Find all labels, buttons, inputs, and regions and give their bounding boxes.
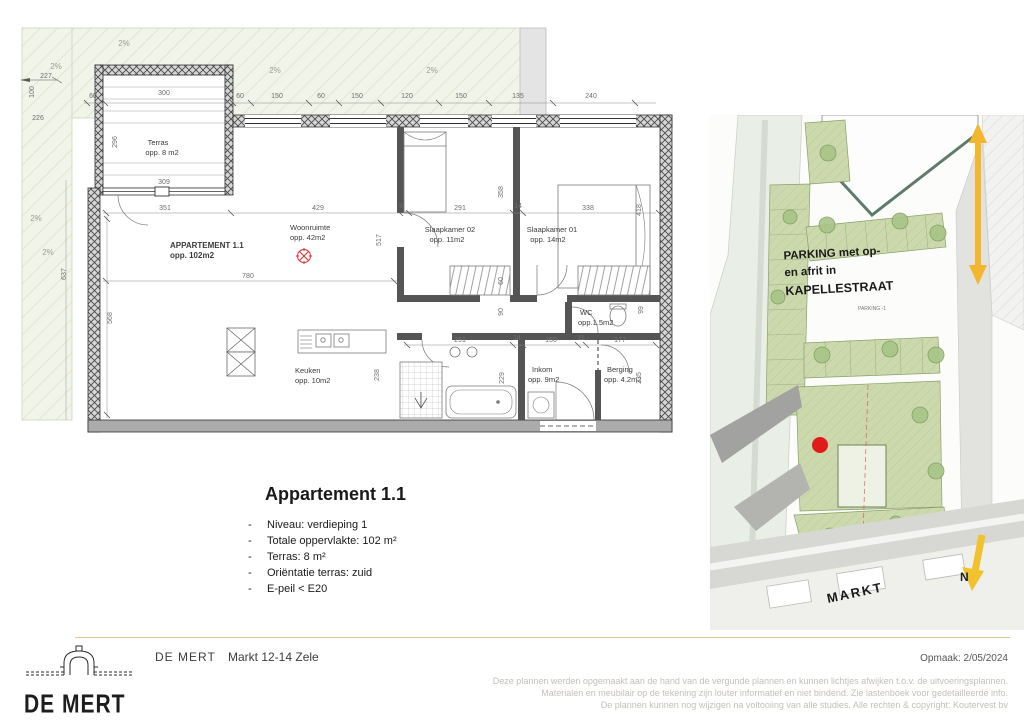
slope-label: 2% [118, 39, 130, 48]
fixtures [227, 132, 650, 418]
dim: 150 [455, 93, 467, 100]
bullet-dash: - [246, 549, 267, 565]
logo-text: DE MERT [24, 690, 126, 720]
dim: 338 [582, 205, 594, 212]
footer-address: Markt 12-14 Zele [228, 650, 319, 664]
info-item-text: Totale oppervlakte: 102 m² [267, 533, 397, 549]
dim-terras-height: 296 [112, 136, 119, 148]
dim: 291 [454, 205, 466, 212]
inkom-area: opp. 9m2 [528, 375, 559, 384]
info-list: -Niveau: verdieping 1 -Totale oppervlakt… [246, 517, 576, 597]
dim-226: 226 [32, 115, 44, 122]
site-plan: N PARKING met op- en afrit in KAPELLESTR… [710, 115, 1024, 630]
dim: 135 [512, 93, 524, 100]
plan-page: 2% 2% 2% 2% 2% 2% 227 100 226 637 [0, 0, 1024, 724]
inkom-name: Inkom [532, 365, 552, 374]
woonruimte-area: opp. 42m2 [290, 233, 325, 242]
slaapkamer01-name: Slaapkamer 01 [527, 225, 577, 234]
slaapkamer02-area: opp. 11m2 [430, 235, 465, 244]
apartment-area: opp. 102m2 [170, 251, 215, 260]
footer-disclaimer: Deze plannen werden opgemaakt aan de han… [488, 675, 1008, 711]
keuken-name: Keuken [295, 366, 320, 375]
dim: 358 [498, 186, 505, 198]
dim: 240 [585, 93, 597, 100]
info-item-text: Niveau: verdieping 1 [267, 517, 367, 533]
terras: Terras opp. 8 m2 300 309 296 [95, 65, 233, 196]
bullet-dash: - [246, 565, 267, 581]
north-label: N [960, 570, 969, 584]
basin-icon [450, 347, 460, 357]
dim: 229 [499, 372, 506, 384]
dim: 150 [545, 337, 557, 344]
dim: 177 [614, 337, 626, 344]
bullet-dash: - [246, 533, 267, 549]
dim: 291 [454, 337, 466, 344]
washer-icon [528, 392, 554, 418]
wc-area: opp.1.5m2 [578, 318, 613, 327]
wc-name: WC [580, 308, 593, 317]
bullet-dash: - [246, 517, 267, 533]
bullet-dash: - [246, 581, 267, 597]
slaapkamer01-area: opp. 14m2 [530, 235, 565, 244]
info-item: -Totale oppervlakte: 102 m² [246, 533, 576, 549]
berging-name: Berging [607, 365, 633, 374]
footer-brand: DE MERT [155, 650, 216, 664]
dim: 418 [636, 204, 643, 216]
dim: 150 [271, 93, 283, 100]
parking-small-label: PARKING -1 [858, 306, 886, 312]
dim: 60 [317, 93, 325, 100]
dim-637: 637 [61, 268, 68, 280]
dim: 99 [638, 306, 645, 314]
keuken-area: opp. 10m2 [295, 376, 330, 385]
dim: 14 [514, 203, 522, 210]
apartment-name: APPARTEMENT 1.1 [170, 241, 244, 250]
info-item-text: E-peil < E20 [267, 581, 327, 597]
dim-100: 100 [29, 86, 36, 98]
slope-label: 2% [42, 248, 54, 257]
dim: 14 [513, 335, 521, 342]
slaapkamer02-name: Slaapkamer 02 [425, 225, 475, 234]
dim: 780 [242, 273, 254, 280]
sink-icon [334, 334, 349, 347]
dim: 11 [577, 335, 584, 342]
terras-name: Terras [148, 138, 169, 147]
info-item-text: Terras: 8 m² [267, 549, 326, 565]
footer-date: Opmaak: 2/05/2024 [920, 653, 1008, 664]
info-item: -E-peil < E20 [246, 581, 576, 597]
floor-plan: 2% 2% 2% 2% 2% 2% 227 100 226 637 [0, 0, 690, 470]
info-title: Appartement 1.1 [265, 484, 576, 505]
shower-icon [400, 362, 442, 418]
apartment-info: Appartement 1.1 -Niveau: verdieping 1 -T… [246, 484, 576, 597]
sink-icon [316, 334, 331, 347]
disclaimer-line: Materialen en meubilair op de tekening z… [488, 687, 1008, 699]
dim: 120 [401, 93, 413, 100]
column [227, 328, 255, 376]
bed-icon [404, 132, 446, 212]
dim: 568 [107, 312, 114, 324]
dim-227: 227 [40, 73, 52, 80]
disclaimer-line: Deze plannen werden opgemaakt aan de han… [488, 675, 1008, 687]
logo: DE MERT [24, 645, 134, 714]
info-item: -Niveau: verdieping 1 [246, 517, 576, 533]
slope-label: 2% [269, 66, 281, 75]
basin-icon [467, 347, 477, 357]
location-dot [812, 437, 828, 453]
slope-label: 2% [50, 62, 62, 71]
dim: 60 [89, 93, 97, 100]
logo-arch-icon [24, 645, 134, 685]
wardrobe-icon [578, 266, 650, 295]
info-item-text: Oriëntatie terras: zuid [267, 565, 372, 581]
disclaimer-line: De plannen kunnen nog wijzigen na voltoo… [488, 699, 1008, 711]
dim: 238 [374, 369, 381, 381]
dim-terras-top: 300 [158, 90, 170, 97]
slope-label: 2% [30, 214, 42, 223]
dim: 9 [399, 203, 403, 210]
woonruimte-name: Woonruimte [290, 223, 330, 232]
terras-area: opp. 8 m2 [145, 148, 178, 157]
dim: 517 [376, 234, 383, 246]
footer-divider [75, 637, 1010, 638]
dim: 60 [236, 93, 244, 100]
slope-label: 2% [426, 66, 438, 75]
info-item: -Oriëntatie terras: zuid [246, 565, 576, 581]
dim: 235 [636, 372, 643, 384]
info-item: -Terras: 8 m² [246, 549, 576, 565]
dim: 90 [498, 308, 505, 316]
detector-icon [296, 248, 312, 264]
dim: 60 [498, 277, 505, 285]
dim: 150 [351, 93, 363, 100]
dim: 351 [159, 205, 171, 212]
dim-terras-bottom: 309 [158, 179, 170, 186]
dim: 429 [312, 205, 324, 212]
